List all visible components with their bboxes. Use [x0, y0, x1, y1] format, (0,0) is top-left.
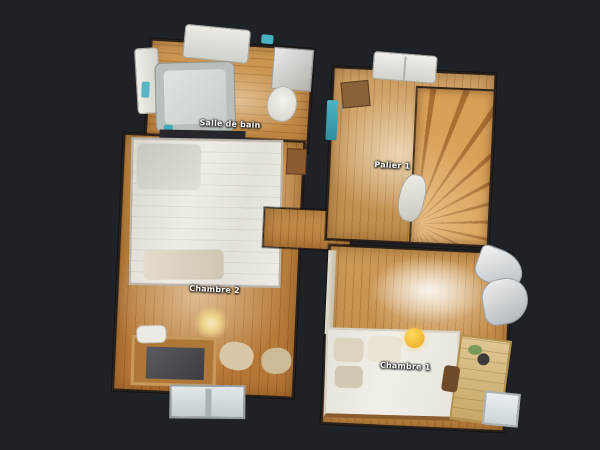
- bed-chambre-1: [324, 327, 460, 421]
- pillow: [333, 337, 364, 362]
- desk-top-surface: [146, 346, 205, 380]
- desk-cushion: [136, 325, 166, 344]
- side-table: [286, 148, 307, 175]
- floorplan-model[interactable]: Salle de bain Palier 1 Chambre 2 Chambre…: [106, 29, 546, 446]
- dormer-window-chambre-2: [169, 384, 245, 419]
- teal-towel-2: [141, 81, 150, 97]
- cabinet-seam: [403, 56, 407, 80]
- bathroom-sink-bowl: [261, 34, 274, 44]
- pillow-3: [334, 366, 363, 389]
- staircase[interactable]: [409, 86, 496, 247]
- dormer-window-frame: [205, 389, 211, 417]
- wooden-box: [340, 80, 370, 109]
- bathroom-sink-unit: [182, 24, 251, 64]
- bed-pillow-area: [136, 143, 201, 190]
- folded-blanket: [143, 249, 223, 280]
- floorplan-viewport[interactable]: Salle de bain Palier 1 Chambre 2 Chambre…: [0, 0, 600, 450]
- desk-object: [477, 353, 490, 366]
- dormer-window-chambre-1: [482, 390, 521, 427]
- bathtub-basin: [164, 69, 227, 124]
- pillow-2: [367, 335, 402, 362]
- shower-glass-panel: [271, 47, 314, 92]
- landing-cabinet: [372, 51, 438, 84]
- bathtub: [154, 61, 236, 133]
- teal-radiator-towel: [325, 100, 338, 140]
